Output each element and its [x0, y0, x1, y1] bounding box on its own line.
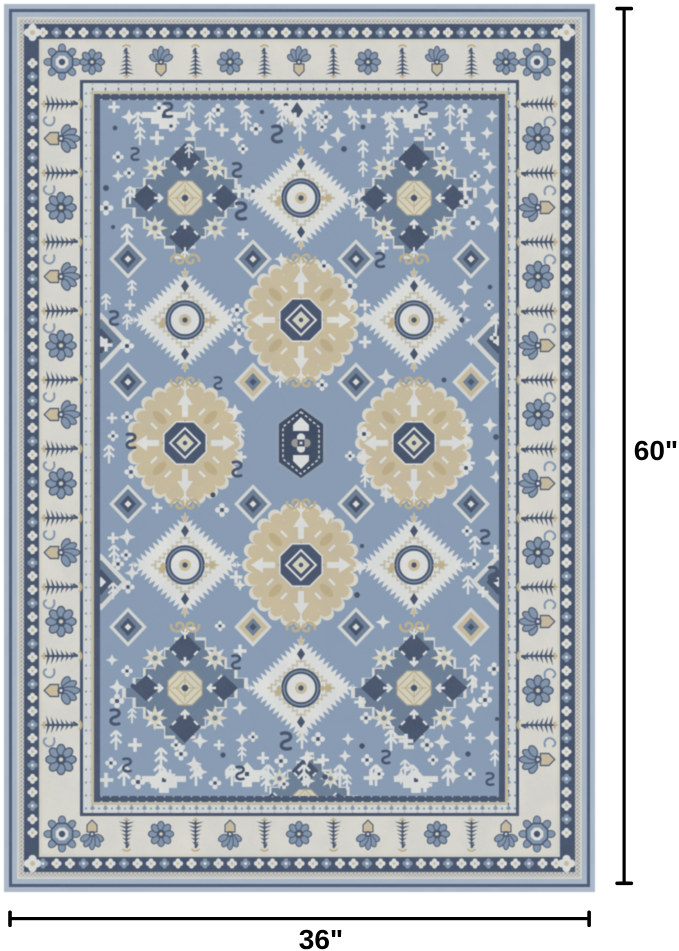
- svg-text:36": 36": [299, 924, 343, 951]
- svg-text:60": 60": [634, 435, 678, 466]
